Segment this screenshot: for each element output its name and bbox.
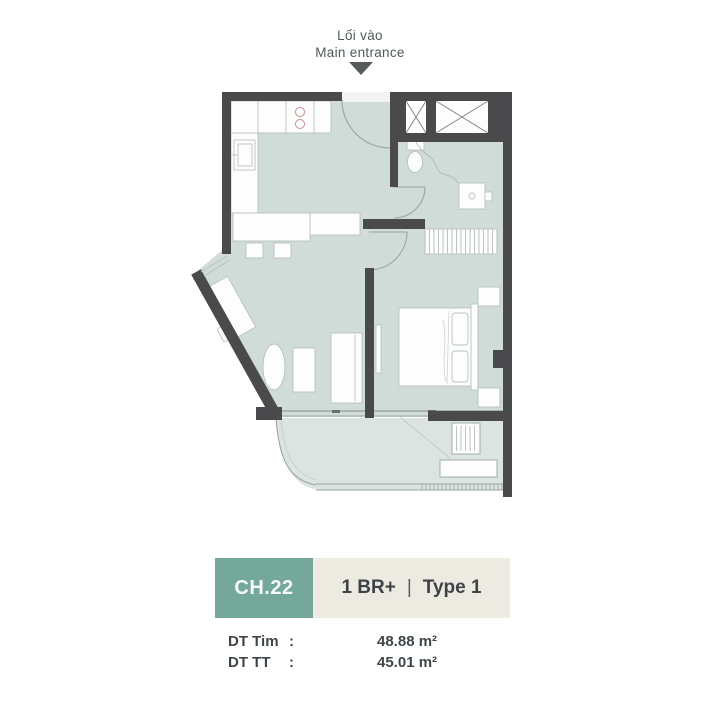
wall-shaft-bottom	[390, 133, 503, 142]
unit-code-badge: CH.22	[215, 558, 313, 618]
headboard	[471, 304, 478, 390]
kitchen-counter-top	[231, 101, 331, 133]
wall-living-bedroom	[365, 268, 374, 418]
entrance-threshold	[342, 92, 390, 102]
wall-bedroom-balcony	[428, 411, 503, 421]
area-label: DT TT	[228, 654, 271, 671]
nightstand	[478, 287, 500, 306]
area-row-tim: DT Tim : 48.88 m²	[215, 633, 510, 654]
wall-shaft-left	[398, 101, 406, 133]
wall-top-right	[390, 92, 512, 101]
area-colon: :	[289, 654, 294, 671]
wall-shaft-divider	[426, 101, 436, 133]
unit-type-divider: |	[407, 577, 412, 599]
wall-top-left	[222, 92, 342, 101]
unit-bedrooms: 1 BR+	[341, 577, 395, 599]
area-row-tt: DT TT : 45.01 m²	[215, 654, 510, 675]
wall-hall-bedroom	[363, 219, 425, 229]
kitchen-sink	[231, 140, 255, 170]
wall-left	[222, 92, 231, 254]
area-table: DT Tim : 48.88 m² DT TT : 45.01 m²	[215, 633, 510, 675]
wall-column-stub	[493, 350, 503, 368]
wardrobe	[425, 229, 497, 254]
nightstand	[478, 388, 500, 407]
wall-bathroom-left	[390, 101, 398, 187]
wall-right	[503, 92, 512, 497]
toilet	[407, 141, 424, 173]
unit-type-name: Type 1	[423, 577, 482, 599]
dining-chair	[274, 243, 291, 258]
oval-side-table	[263, 344, 285, 390]
area-value: 45.01 m²	[377, 654, 437, 671]
pillow	[452, 313, 468, 345]
dining-table	[233, 213, 310, 241]
pillow	[452, 351, 468, 382]
technical-shafts	[406, 101, 488, 133]
sofa	[331, 333, 362, 403]
tv	[376, 325, 381, 373]
console-table	[310, 213, 360, 235]
unit-card: CH.22 1 BR+ | Type 1	[215, 558, 510, 618]
area-colon: :	[289, 633, 294, 650]
coffee-table	[293, 348, 315, 392]
bed	[399, 304, 478, 390]
area-value: 48.88 m²	[377, 633, 437, 650]
wall-diagonal-end	[256, 407, 282, 420]
dining-chair	[246, 243, 263, 258]
wall-shaft-right	[488, 101, 503, 133]
unit-type-label: 1 BR+ | Type 1	[313, 558, 510, 618]
area-label: DT Tim	[228, 633, 279, 650]
